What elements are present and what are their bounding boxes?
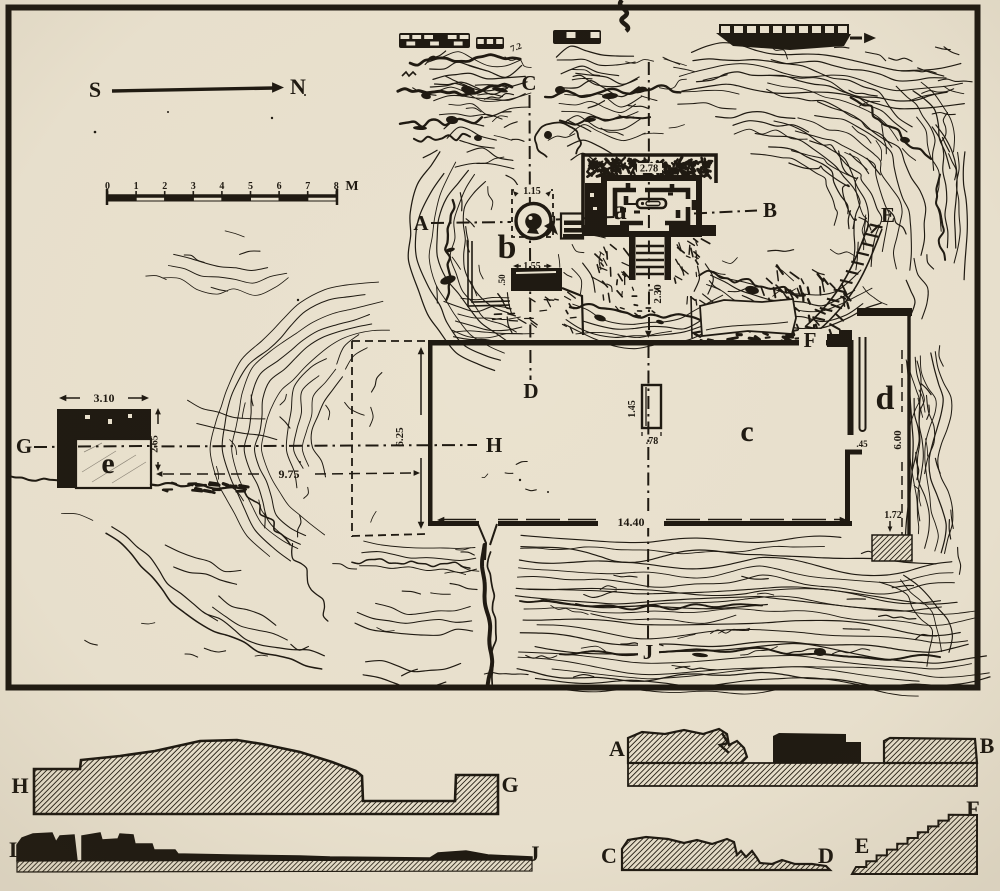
svg-text:B: B — [980, 733, 995, 758]
svg-text:e: e — [101, 447, 114, 480]
svg-text:S: S — [89, 77, 101, 102]
svg-text:.50: .50 — [497, 274, 507, 286]
svg-text:H: H — [486, 433, 502, 457]
svg-text:6: 6 — [277, 181, 282, 192]
svg-text:d: d — [876, 380, 895, 417]
svg-text:6.25: 6.25 — [394, 427, 406, 447]
svg-text:2.78: 2.78 — [640, 164, 658, 175]
svg-text:F: F — [804, 328, 817, 352]
svg-text:C: C — [521, 71, 536, 95]
svg-text:7: 7 — [305, 181, 310, 192]
svg-text:E: E — [881, 203, 895, 227]
svg-text:G: G — [501, 772, 518, 797]
svg-text:1.72: 1.72 — [884, 510, 902, 521]
svg-text:4: 4 — [219, 181, 224, 192]
svg-text:A: A — [609, 736, 625, 761]
svg-text:J: J — [529, 841, 540, 866]
svg-text:1.15: 1.15 — [523, 186, 541, 197]
svg-text:J: J — [643, 640, 654, 664]
svg-text:A: A — [413, 211, 429, 235]
svg-text:H: H — [11, 773, 28, 798]
svg-text:2: 2 — [162, 181, 167, 192]
svg-text:I: I — [9, 837, 18, 862]
svg-text:M: M — [345, 179, 358, 194]
svg-text:D: D — [523, 379, 538, 403]
svg-text:2.30: 2.30 — [652, 284, 664, 304]
svg-text:a: a — [613, 195, 627, 225]
svg-text:5: 5 — [248, 181, 253, 192]
svg-text:E: E — [855, 833, 870, 858]
svg-text:1.45: 1.45 — [627, 400, 638, 418]
svg-text:D: D — [818, 843, 834, 868]
svg-text:1: 1 — [134, 181, 139, 192]
svg-text:9.75: 9.75 — [279, 467, 300, 481]
svg-text:N: N — [290, 74, 306, 99]
svg-text:B: B — [763, 198, 777, 222]
svg-text:b: b — [498, 229, 517, 266]
svg-text:14.40: 14.40 — [618, 515, 645, 529]
svg-text:6.00: 6.00 — [892, 430, 904, 450]
svg-text:c: c — [740, 415, 753, 448]
svg-text:.78: .78 — [646, 436, 659, 447]
svg-text:C: C — [601, 843, 617, 868]
svg-text:2.65: 2.65 — [150, 435, 161, 453]
svg-text:G: G — [16, 434, 32, 458]
svg-text:F: F — [966, 796, 979, 821]
svg-text:.45: .45 — [856, 439, 868, 449]
svg-text:3.10: 3.10 — [94, 391, 115, 405]
svg-text:3: 3 — [191, 181, 196, 192]
